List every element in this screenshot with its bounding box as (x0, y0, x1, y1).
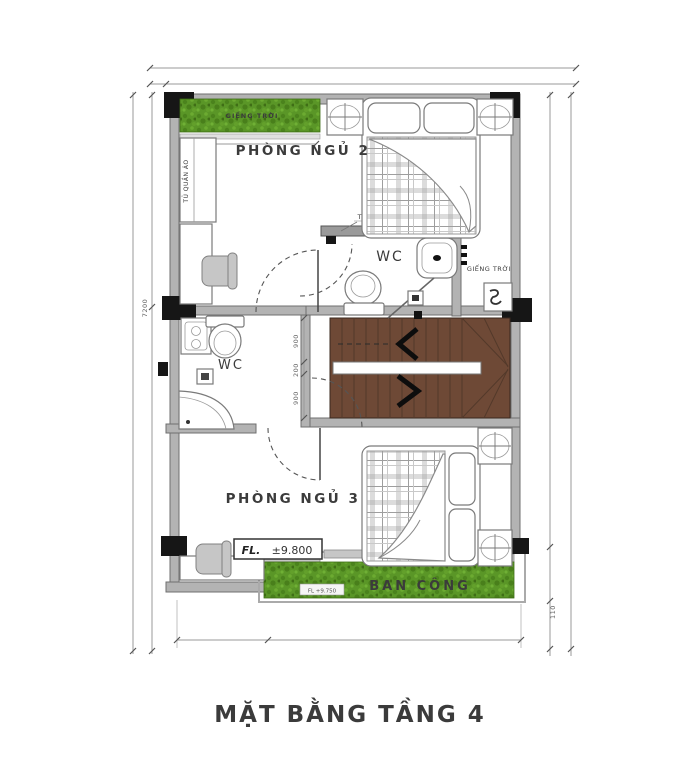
toilet-tank (344, 303, 384, 315)
floor-level-value: ±9.800 (272, 544, 313, 557)
wc-main-label: WC (376, 249, 404, 265)
nightstand-lamp (478, 428, 512, 464)
nightstand-lamp (478, 530, 512, 566)
nightstand-lamp (327, 99, 363, 135)
column (161, 536, 187, 556)
dim-right-side: 110 (549, 605, 557, 619)
dim-stair-run-top: 900 (292, 334, 300, 348)
wardrobe-label: TỦ QUẦN ÁO (182, 159, 190, 203)
balcony-label: BAN CÔNG (369, 578, 471, 594)
dim-stair-landing: 200 (292, 363, 300, 377)
bed-bedroom2 (362, 98, 480, 238)
skylight-side: GIẾNG TRỜI (467, 263, 512, 311)
balcony-level-tag: FL +9.750 (300, 584, 344, 595)
floor-level-tag: FL. ±9.800 (234, 539, 322, 559)
skylight-strip-label: GIẾNG TRỜI (226, 110, 279, 120)
pillow (449, 509, 475, 561)
floor-plan-page: 7200 110 (0, 0, 700, 775)
pillow (449, 453, 475, 505)
toilet-bowl (345, 271, 381, 305)
bedroom2-label: PHÒNG NGỦ 2 (236, 140, 371, 159)
dim-left-overall: 7200 (141, 299, 149, 318)
skylight-side-label: GIẾNG TRỜI (467, 263, 511, 273)
bedroom3-label: PHÒNG NGỦ 3 (226, 488, 361, 507)
nightstand-lamp (477, 99, 513, 135)
pillow (368, 103, 420, 133)
bed-bedroom3 (362, 446, 480, 566)
staircase: 900 200 900 (292, 315, 510, 421)
floor-plan-drawing: 7200 110 (0, 0, 700, 775)
drain-box (484, 283, 512, 311)
pillow (424, 103, 474, 133)
floor-level-prefix: FL. (242, 544, 261, 557)
wc-small-label: WC (218, 358, 244, 373)
stair-handrail (333, 362, 481, 374)
dim-stair-run-bottom: 900 (292, 391, 300, 405)
balcony-level-value: FL +9.750 (308, 589, 337, 595)
wc-small: WC (179, 316, 244, 429)
page-title: MẶT BẰNG TẦNG 4 (214, 697, 485, 728)
